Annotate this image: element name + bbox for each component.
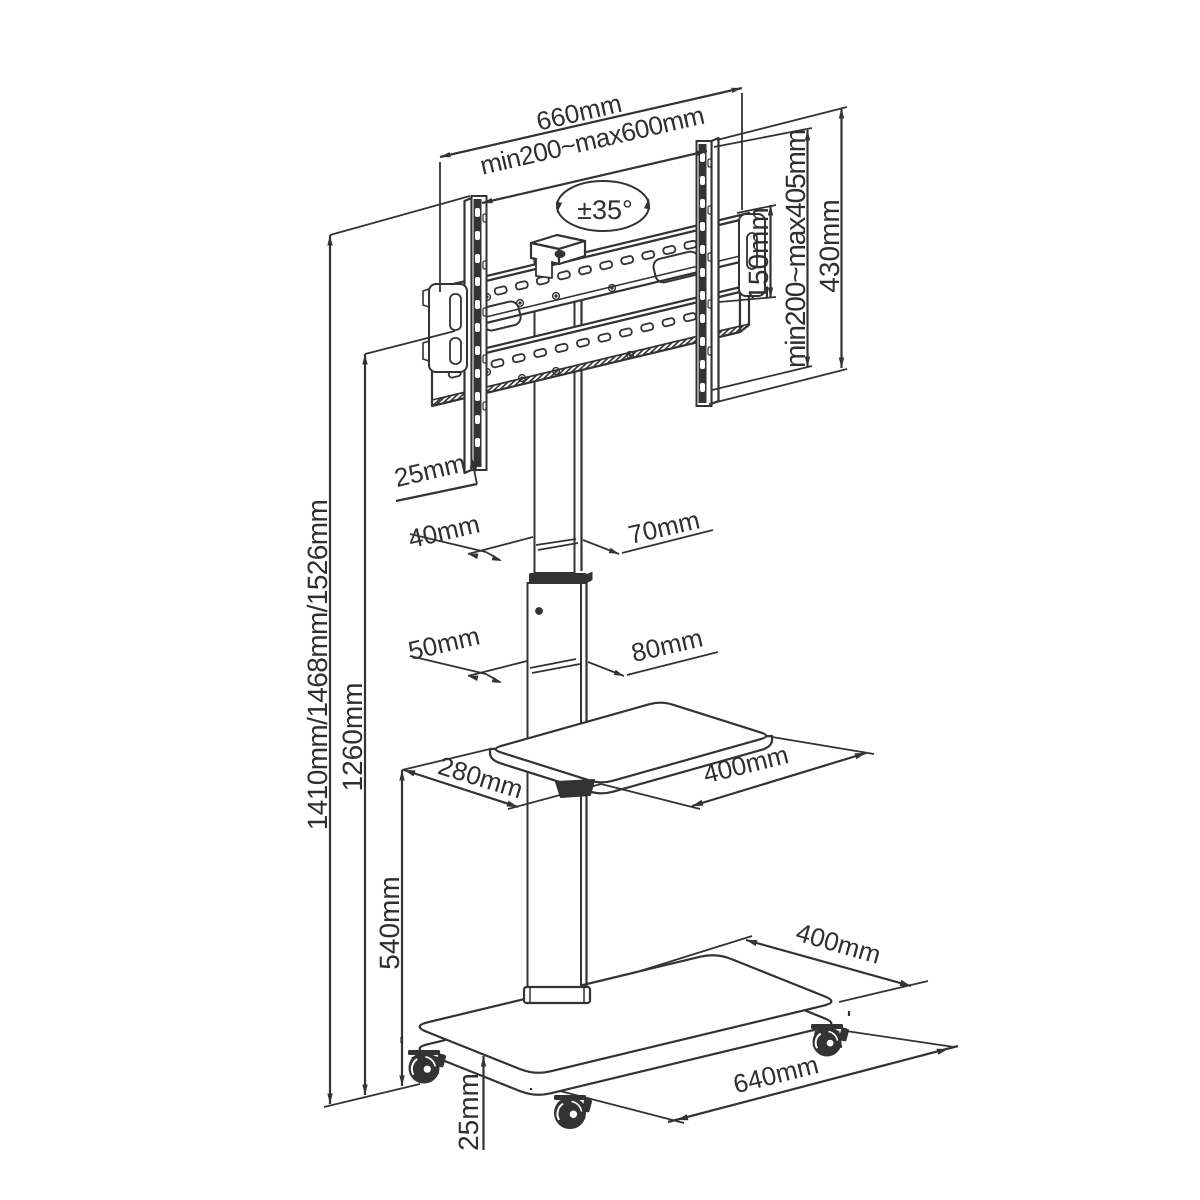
svg-text:1410mm/1468mm/1526mm: 1410mm/1468mm/1526mm (302, 500, 333, 830)
svg-text:±35°: ±35° (577, 195, 633, 225)
svg-text:min200~max405mm: min200~max405mm (780, 130, 811, 368)
svg-text:430mm: 430mm (814, 199, 845, 292)
svg-text:25mm: 25mm (453, 1073, 484, 1151)
svg-text:1260mm: 1260mm (337, 683, 368, 792)
svg-text:150mm: 150mm (743, 207, 774, 300)
svg-text:540mm: 540mm (374, 876, 405, 969)
